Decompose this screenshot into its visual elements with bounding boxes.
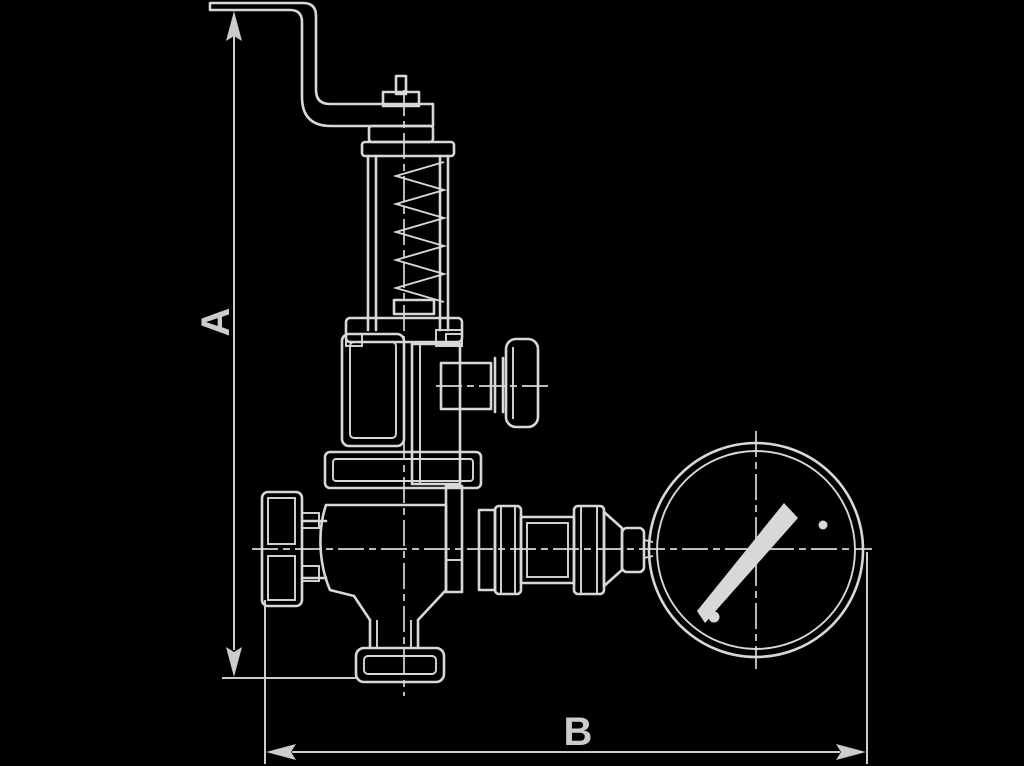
technical-drawing-canvas: A B [0,0,1024,766]
body-side-column [446,486,462,592]
arrow-left-icon [266,744,296,760]
valve-body [320,505,446,648]
gauge-stop-pin-left [709,612,720,623]
union-nut-1 [495,506,521,594]
outlet-flange [356,648,444,682]
gauge-stop-pin-right [819,521,828,530]
arrow-down-icon [226,647,242,677]
bonnet-cap [369,126,433,142]
spring-seat [394,300,434,314]
dimension-a: A [194,11,356,678]
union-nut-2 [574,506,604,594]
lifting-lever [210,3,433,126]
dimension-b-label: B [564,710,593,754]
dimension-a-label: A [194,308,238,337]
pipe-stub [479,510,495,590]
pipe-section [521,517,574,583]
body-flange [325,452,481,488]
test-stem [436,358,548,412]
test-knob [506,339,538,427]
valve-assembly [210,3,863,682]
bonnet-column [412,330,462,484]
bonnet-cap-flange [362,142,454,156]
arrow-right-icon [836,744,866,760]
bonnet-foot-left [346,334,362,346]
gauge-piping [495,506,653,594]
gauge-needle [697,503,798,623]
gauge-boss [622,528,644,572]
pressure-gauge [649,431,863,669]
bell-housing [342,334,404,446]
valve-dimension-drawing: A B [0,0,1024,766]
